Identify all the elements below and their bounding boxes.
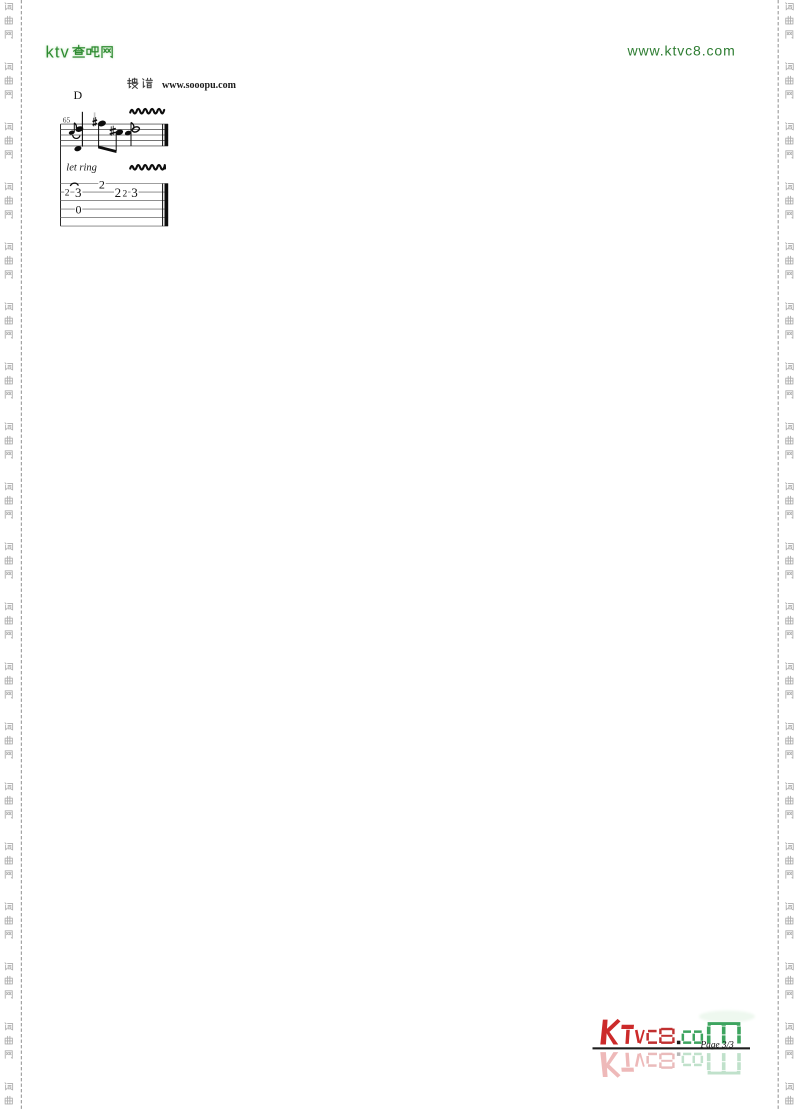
- svg-text:ktv: ktv: [46, 43, 70, 61]
- svg-text:let ring: let ring: [66, 163, 97, 174]
- svg-text:3: 3: [131, 185, 138, 200]
- svg-text:3: 3: [75, 185, 82, 200]
- svg-text:2: 2: [115, 185, 122, 200]
- svg-text:2: 2: [65, 188, 70, 198]
- svg-text:www.sooopu.com: www.sooopu.com: [162, 80, 237, 91]
- svg-text:D: D: [74, 88, 83, 102]
- svg-text:2: 2: [123, 190, 128, 200]
- svg-text:www.ktvc8.com: www.ktvc8.com: [627, 43, 736, 59]
- svg-text:0: 0: [76, 202, 82, 216]
- svg-text:65: 65: [63, 115, 71, 124]
- svg-text:2: 2: [99, 177, 105, 191]
